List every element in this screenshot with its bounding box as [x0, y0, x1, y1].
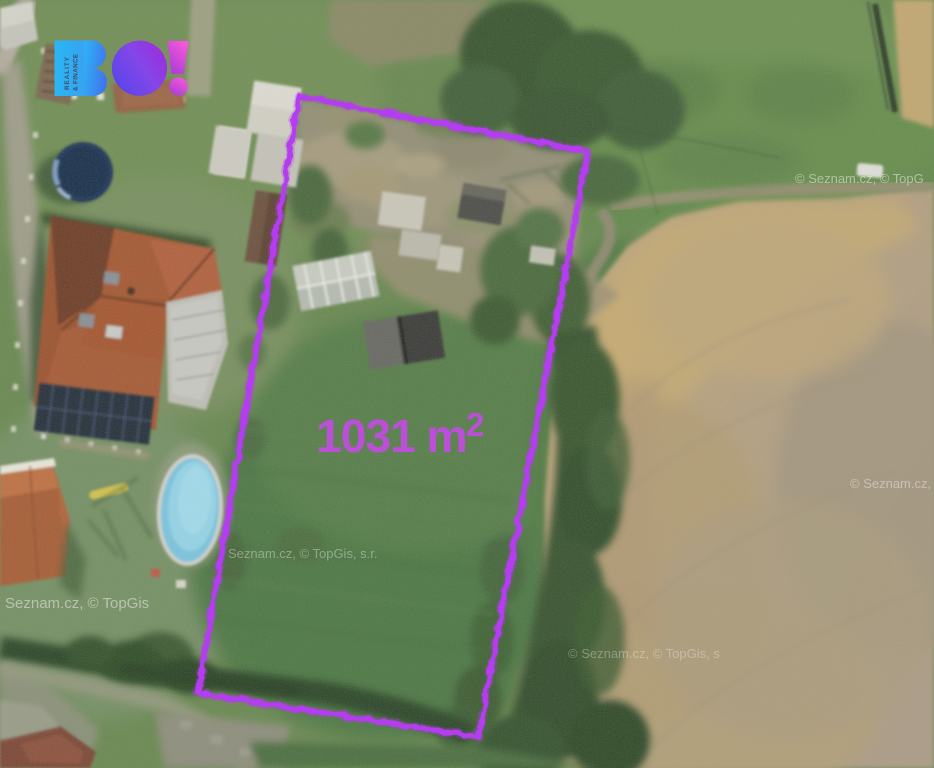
- svg-text:Seznam.cz, © TopGis: Seznam.cz, © TopGis: [5, 595, 149, 612]
- svg-text:© Seznam.cz, © TopG: © Seznam.cz, © TopG: [795, 171, 924, 186]
- svg-text:© Seznam.cz, © TopGis, s: © Seznam.cz, © TopGis, s: [568, 646, 720, 661]
- svg-text:REALITY: REALITY: [64, 56, 71, 90]
- svg-text:Seznam.cz, © TopGis, s.r.: Seznam.cz, © TopGis, s.r.: [228, 546, 378, 561]
- svg-text:© Seznam.cz,: © Seznam.cz,: [850, 476, 931, 491]
- svg-text:2: 2: [466, 406, 484, 443]
- svg-text:& FINANCE: & FINANCE: [73, 54, 80, 91]
- svg-text:1031 m: 1031 m: [316, 410, 467, 462]
